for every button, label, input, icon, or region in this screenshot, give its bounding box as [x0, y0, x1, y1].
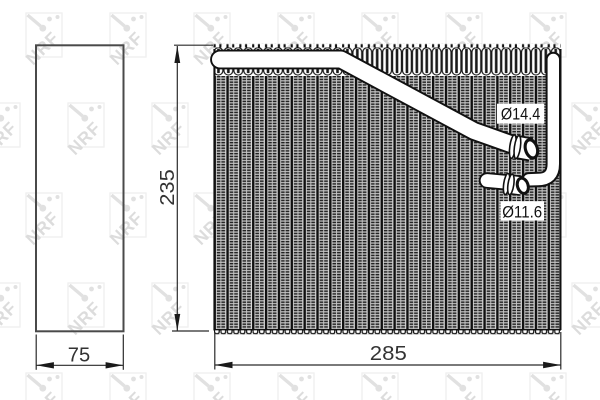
svg-text:235: 235: [157, 169, 179, 206]
svg-text:75: 75: [68, 344, 90, 367]
svg-text:Ø11.6: Ø11.6: [502, 203, 542, 222]
svg-text:Ø14.4: Ø14.4: [501, 105, 541, 124]
svg-text:285: 285: [370, 343, 407, 365]
